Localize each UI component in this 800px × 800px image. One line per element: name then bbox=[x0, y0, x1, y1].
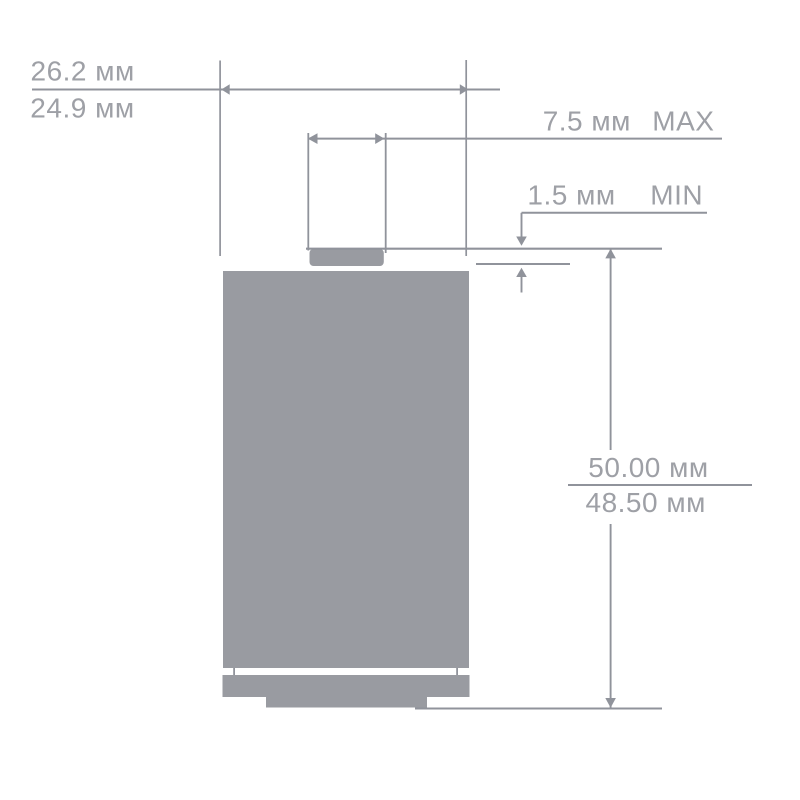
svg-text:48.50 мм: 48.50 мм bbox=[586, 487, 706, 518]
svg-text:1.5 мм: 1.5 мм bbox=[527, 180, 615, 211]
svg-text:24.9 мм: 24.9 мм bbox=[30, 93, 134, 124]
svg-text:7.5 мм: 7.5 мм bbox=[543, 106, 631, 137]
svg-text:MIN: MIN bbox=[650, 180, 703, 211]
svg-text:26.2 мм: 26.2 мм bbox=[31, 56, 135, 87]
svg-text:50.00 мм: 50.00 мм bbox=[588, 452, 708, 483]
svg-text:MAX: MAX bbox=[652, 106, 714, 137]
